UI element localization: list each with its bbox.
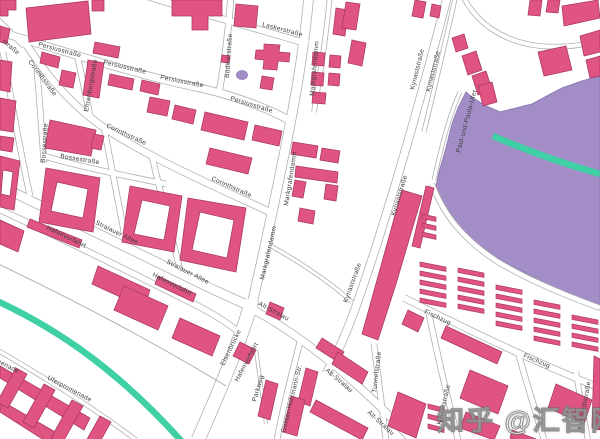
pond — [237, 71, 248, 80]
building — [528, 0, 542, 16]
building — [580, 30, 600, 56]
building — [206, 148, 252, 174]
building — [298, 208, 315, 224]
building-rowhouse — [420, 262, 446, 272]
building-courtyard — [192, 212, 234, 258]
building — [324, 184, 338, 201]
building — [328, 73, 340, 86]
building-rowhouse — [496, 285, 522, 295]
building — [402, 310, 424, 332]
building — [295, 166, 338, 183]
building-rowhouse — [534, 327, 560, 337]
building-rowhouse — [496, 294, 522, 304]
building-rowhouse — [458, 295, 484, 305]
building — [252, 125, 282, 146]
building-rowhouse — [458, 286, 484, 296]
building — [147, 97, 170, 116]
building-rowhouse — [420, 289, 446, 299]
building-rowhouse — [534, 300, 560, 310]
building-courtyard — [51, 182, 88, 218]
building-rowhouse — [496, 312, 522, 322]
building — [172, 0, 222, 30]
building — [108, 74, 134, 90]
map-image: PersiusstraßePersiusstraßePersiusstraßeP… — [0, 0, 600, 439]
building — [255, 44, 290, 70]
building — [586, 56, 600, 78]
building — [172, 318, 220, 356]
building — [329, 55, 341, 68]
building-rowhouse — [496, 303, 522, 313]
building — [0, 60, 12, 92]
building — [348, 40, 366, 66]
building-rowhouse — [572, 324, 598, 334]
building — [460, 412, 500, 439]
building — [546, 0, 560, 13]
building — [562, 0, 600, 26]
building-rowhouse — [458, 304, 484, 314]
building — [26, 1, 91, 42]
building — [93, 42, 120, 58]
building — [92, 0, 104, 11]
building — [260, 76, 274, 90]
building — [462, 51, 482, 75]
building — [234, 4, 258, 28]
building-rowhouse — [458, 277, 484, 287]
map-canvas[interactable]: PersiusstraßePersiusstraßePersiusstraßeP… — [0, 0, 600, 439]
building — [0, 98, 16, 132]
building-rowhouse — [572, 342, 598, 352]
street-ns-street-a — [104, 128, 124, 232]
building-rowhouse — [422, 232, 436, 240]
building — [0, 220, 24, 252]
building — [320, 148, 340, 163]
building — [342, 2, 360, 30]
building — [452, 34, 468, 52]
building — [412, 0, 426, 18]
building — [45, 120, 96, 156]
building-rowhouse — [420, 280, 446, 290]
building — [292, 180, 306, 198]
building — [201, 112, 248, 140]
building — [172, 105, 196, 124]
building — [592, 356, 600, 430]
building-rowhouse — [572, 333, 598, 343]
building — [59, 70, 76, 88]
building-rowhouse — [534, 336, 560, 346]
building — [430, 4, 441, 18]
building — [0, 136, 14, 152]
building-rowhouse — [534, 309, 560, 319]
building-rowhouse — [420, 271, 446, 281]
street-label: Fischzug — [522, 352, 551, 370]
building-rowhouse — [458, 268, 484, 278]
building — [0, 0, 16, 16]
building — [310, 400, 368, 439]
building-rowhouse — [496, 321, 522, 331]
building — [460, 370, 508, 414]
building — [538, 46, 572, 76]
building — [510, 430, 536, 439]
building-rowhouse — [572, 315, 598, 325]
building-rowhouse — [534, 318, 560, 328]
